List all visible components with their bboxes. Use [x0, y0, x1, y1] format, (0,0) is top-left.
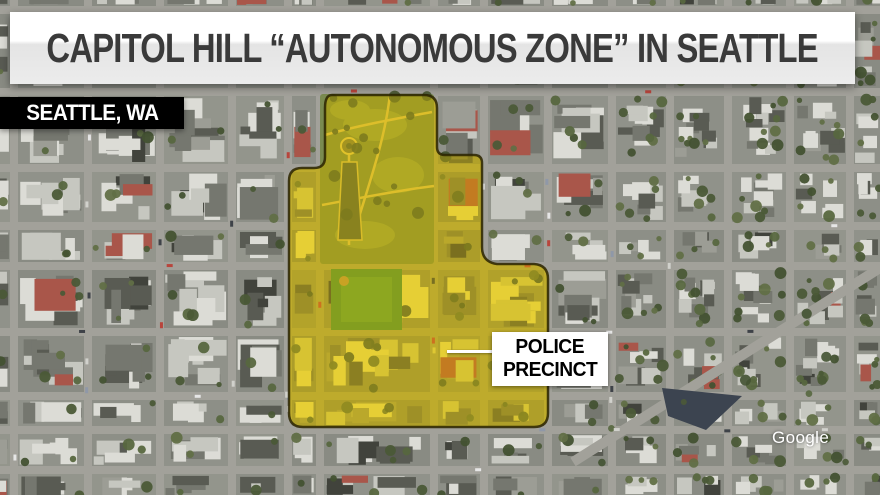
- google-watermark: Google: [772, 428, 829, 448]
- callout-line1: POLICE: [516, 336, 585, 359]
- news-map-graphic: CAPITOL HILL “AUTONOMOUS ZONE” IN SEATTL…: [0, 0, 880, 495]
- location-tag: SEATTLE, WA: [0, 97, 184, 129]
- callout-line2: PRECINCT: [503, 359, 597, 382]
- headline-banner: CAPITOL HILL “AUTONOMOUS ZONE” IN SEATTL…: [10, 12, 855, 84]
- headline-text: CAPITOL HILL “AUTONOMOUS ZONE” IN SEATTL…: [47, 25, 818, 72]
- location-tag-label: SEATTLE, WA: [26, 100, 158, 126]
- police-precinct-callout: POLICE PRECINCT: [492, 332, 608, 386]
- callout-pointer-line: [447, 350, 493, 353]
